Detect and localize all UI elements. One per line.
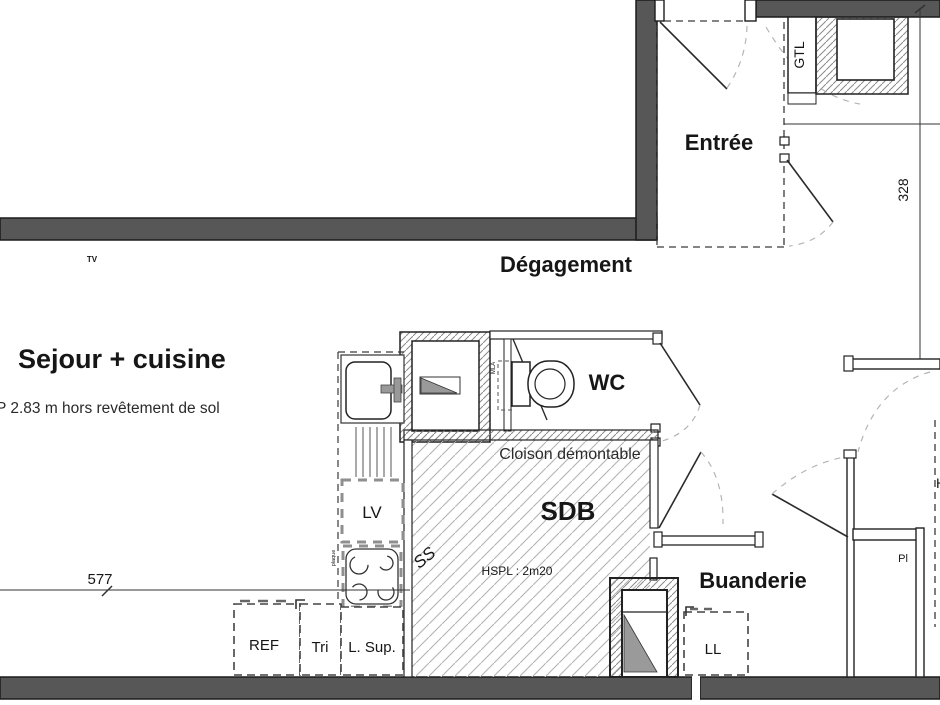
floor-plan-canvas: Entrée GTL 328 Pl H Dégagement TV (0, 0, 940, 705)
cloison-demontable-label: Cloison démontable (499, 446, 641, 463)
wc-partition (504, 339, 511, 431)
sejour-height-note: P 2.83 m hors revêtement de sol (0, 400, 220, 417)
degagement-door-frames (780, 137, 789, 162)
placard-label: Pl (898, 553, 908, 565)
drainer-lines (356, 427, 391, 477)
buanderie-door1-arc (701, 452, 723, 524)
buanderie-door1-leaf (659, 452, 701, 528)
duct-inner (837, 19, 894, 80)
wall-placard-vertical-right (916, 528, 924, 677)
entree-door-frames (655, 0, 756, 21)
wall-top-right (756, 0, 940, 17)
right-room-door-arc (858, 372, 930, 452)
entree-door-arc (727, 26, 747, 88)
sdb-top-partition (404, 430, 658, 440)
buanderie-label: Buanderie (699, 568, 807, 593)
ll-label: LL (705, 641, 722, 658)
clipped-h-label: H (936, 475, 940, 491)
degagement-door-arc (789, 222, 833, 246)
buanderie-wall-horizontal (661, 536, 757, 545)
wall-placard-horizontal (853, 529, 917, 540)
entree-label: Entrée (685, 130, 753, 155)
faucet-vertical (394, 378, 401, 402)
buanderie-door2-leaf (772, 494, 848, 537)
wall-left-horizontal (0, 218, 657, 240)
right-side-structure: 328 Pl H (784, 5, 940, 677)
gtl-duct-module: GTL (788, 17, 908, 104)
wc-exit-door-arc (662, 405, 700, 441)
wall-bottom-right (700, 677, 940, 699)
gtl-label: GTL (791, 41, 807, 68)
gtl-sub-box (788, 93, 816, 104)
wc-label: WC (589, 370, 626, 395)
buanderie-door2-arc (772, 457, 845, 494)
wc-module: MLA WC (400, 331, 700, 446)
degagement-label: Dégagement (500, 252, 633, 277)
wall-entree-vertical (636, 0, 657, 240)
mla-label: MLA (491, 362, 497, 374)
cooktop-tiny-label: plaque (331, 550, 337, 567)
sejour-label: Sejour + cuisine (18, 344, 226, 374)
wall-bottom-left (0, 677, 692, 699)
dimension-328: 328 (895, 178, 911, 202)
ref-label: REF (249, 637, 279, 654)
hspl-note: HSPL : 2m20 (482, 564, 553, 578)
bottom-wall-gap (692, 676, 700, 700)
tv-outlet-label: TV (87, 255, 98, 264)
tri-label: Tri (312, 639, 329, 656)
dimension-577: 577 (87, 571, 112, 588)
floor-plan-drawing: Entrée GTL 328 Pl H Dégagement TV (0, 0, 940, 705)
degagement-door-leaf (787, 160, 833, 222)
wc-exit-door-leaf (660, 343, 700, 405)
sdb-label: SDB (541, 496, 596, 526)
wc-top-wall (490, 331, 662, 339)
sdb-right-wall-lower (650, 558, 657, 580)
lsup-label: L. Sup. (348, 639, 396, 656)
entree-door-leaf (660, 22, 727, 89)
sdb-right-wall-upper (650, 440, 658, 528)
wall-placard-vertical-left (847, 452, 854, 677)
lv-label: LV (362, 503, 382, 522)
wall-right-horizontal (848, 359, 940, 369)
